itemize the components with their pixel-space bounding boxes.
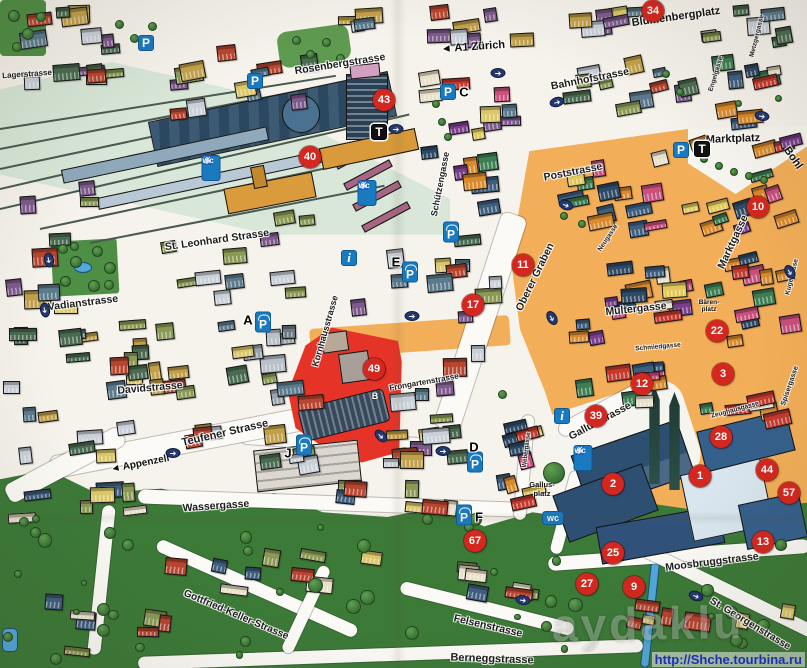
building — [285, 286, 306, 299]
one-way-icon: ➔ — [491, 68, 506, 78]
building — [732, 4, 749, 16]
poi-marker-12: 12 — [631, 373, 653, 395]
tree-icon — [730, 168, 738, 176]
building — [81, 27, 104, 45]
building — [635, 395, 655, 409]
poi-marker-10: 10 — [747, 196, 769, 218]
wc-icon: wc — [542, 511, 564, 525]
covered-parking-icon: P — [456, 505, 472, 526]
building — [276, 379, 305, 397]
wc-icon: wc — [575, 446, 587, 456]
building — [430, 413, 454, 424]
building — [5, 279, 23, 298]
building — [261, 372, 278, 386]
tree-icon — [438, 118, 446, 126]
poi-marker-9: 9 — [623, 576, 645, 598]
poi-marker-3: 3 — [712, 363, 734, 385]
one-way-icon: ➔ — [389, 124, 404, 134]
tree-icon — [360, 590, 375, 605]
tree-icon — [73, 609, 79, 615]
building — [80, 197, 99, 208]
parking-icon: P — [440, 84, 456, 100]
building — [45, 594, 64, 611]
building — [774, 26, 792, 45]
building — [116, 420, 136, 437]
poi-marker-13: 13 — [752, 531, 774, 553]
tree-icon — [346, 599, 361, 614]
building — [759, 269, 774, 287]
transit-stop-icon-t-marktplatz: T — [694, 141, 710, 157]
tree-icon — [14, 570, 22, 578]
building — [66, 352, 90, 363]
tree-icon — [104, 280, 114, 290]
tree-icon — [662, 70, 670, 78]
building — [607, 260, 634, 276]
building — [510, 32, 534, 47]
covered-parking-icon: P — [296, 435, 312, 456]
building — [701, 31, 721, 44]
building — [121, 483, 135, 503]
building — [56, 7, 70, 19]
tree-icon — [490, 568, 498, 576]
tree-icon — [735, 100, 742, 107]
building — [476, 152, 498, 172]
building — [470, 345, 484, 362]
building — [186, 97, 207, 118]
building — [299, 214, 316, 226]
building — [214, 289, 233, 306]
info-icon: i — [554, 408, 570, 424]
tree-icon — [70, 256, 82, 268]
poi-marker-34: 34 — [642, 0, 664, 22]
tree-icon — [514, 614, 521, 621]
tree-icon — [12, 42, 22, 52]
tree-icon — [745, 172, 753, 180]
tree-icon — [322, 38, 331, 47]
building — [119, 319, 147, 331]
accessible-wc-icon: ♿wc — [202, 155, 221, 181]
tree-icon — [317, 524, 324, 531]
watermark-ghost: aydaklu — [552, 594, 807, 652]
tree-icon — [498, 390, 507, 399]
building — [110, 356, 130, 375]
building — [344, 480, 369, 498]
tree-icon — [135, 643, 144, 652]
tree-icon — [760, 176, 768, 184]
building — [575, 378, 594, 398]
tree-icon — [715, 162, 723, 170]
building — [727, 70, 744, 90]
poi-marker-49: 49 — [363, 358, 385, 380]
building — [224, 273, 245, 290]
poi-marker-44: 44 — [756, 459, 778, 481]
tree-icon — [108, 610, 119, 621]
poi-marker-27: 27 — [576, 573, 598, 595]
building — [641, 182, 664, 203]
covered-parking-icon: P — [443, 222, 459, 243]
building — [731, 264, 750, 281]
place-label-gallusplatz: Gallus- platz — [529, 480, 554, 498]
poi-marker-17: 17 — [462, 294, 484, 316]
building — [422, 427, 451, 445]
building — [170, 108, 188, 122]
building — [502, 104, 518, 119]
poi-marker-1: 1 — [689, 465, 711, 487]
building — [480, 106, 501, 123]
poi-marker-22: 22 — [706, 320, 728, 342]
covered-parking-icon: P — [402, 262, 418, 283]
building — [58, 327, 83, 346]
garage-letter-E: E — [392, 255, 401, 270]
building — [269, 270, 295, 286]
tree-icon — [58, 244, 68, 254]
building — [415, 388, 429, 401]
building — [23, 407, 37, 423]
tree-icon — [775, 95, 782, 102]
tree-icon — [775, 539, 787, 551]
poi-marker-25: 25 — [602, 542, 624, 564]
building — [217, 320, 235, 332]
building — [449, 121, 471, 136]
building — [493, 86, 509, 102]
building — [779, 313, 803, 335]
tree-icon — [97, 624, 110, 637]
building — [158, 615, 172, 633]
building — [576, 319, 591, 331]
building — [420, 145, 439, 160]
tree-icon — [240, 636, 251, 647]
place-label-marktplatz: Marktplatz — [706, 132, 761, 146]
building — [245, 566, 262, 580]
tree-icon — [276, 588, 284, 596]
building — [400, 450, 424, 468]
building — [19, 196, 36, 215]
building — [87, 68, 107, 83]
building — [477, 198, 501, 216]
one-way-icon: ➔ — [405, 311, 420, 321]
poi-marker-11: 11 — [512, 254, 534, 276]
building — [53, 62, 81, 81]
parking-icon: P — [247, 73, 263, 89]
tree-icon — [560, 212, 568, 220]
building — [427, 28, 451, 43]
place-label-baerenplatz: Bären- platz — [699, 299, 720, 313]
one-way-icon: ➔ — [548, 95, 565, 109]
building — [226, 364, 250, 385]
tree-icon — [88, 280, 100, 292]
one-way-icon: ➔ — [436, 446, 451, 456]
building — [569, 13, 593, 29]
building — [726, 334, 744, 348]
poi-marker-67: 67 — [464, 530, 486, 552]
tree-icon — [22, 28, 34, 40]
covered-parking-icon: P — [255, 312, 271, 333]
building — [645, 265, 666, 279]
tree-icon — [308, 578, 323, 593]
tree-icon — [104, 527, 116, 539]
building — [222, 247, 247, 265]
poi-marker-43: 43 — [373, 89, 395, 111]
tree-icon — [432, 100, 440, 108]
tree-icon — [60, 276, 71, 287]
garage-letter-B: B — [372, 391, 379, 401]
garage-letter-D: D — [469, 440, 478, 455]
building — [386, 429, 409, 441]
building — [216, 44, 237, 62]
building — [350, 298, 366, 316]
building — [89, 487, 114, 504]
tree-icon — [70, 242, 79, 251]
tree-icon — [292, 36, 301, 45]
building — [137, 627, 159, 638]
building — [426, 272, 454, 293]
tree-icon — [306, 50, 315, 59]
street-label-lagerstrasse: Lagerstrasse — [2, 68, 52, 80]
building — [465, 568, 488, 583]
parking-icon: P — [138, 35, 154, 51]
wc-icon: wc — [359, 181, 371, 191]
building — [662, 281, 688, 299]
transit-stop-icon-t-bahnhof: T — [371, 124, 387, 140]
building — [155, 322, 175, 341]
accessible-wc-icon: ♿wc — [574, 445, 593, 471]
tree-icon — [552, 556, 562, 566]
garage-letter-C: C — [459, 85, 468, 100]
building — [615, 100, 642, 117]
tree-icon — [104, 262, 116, 274]
one-way-icon: ➔ — [166, 448, 181, 458]
street-label-stleonhard: St. Leonhard Strasse — [164, 227, 270, 254]
building — [164, 557, 187, 576]
city-map: aydaklu http://Shche.tourbina.ru Lagerst… — [0, 0, 807, 668]
tree-icon — [444, 133, 452, 141]
building — [418, 70, 441, 88]
building — [297, 394, 324, 411]
garage-letter-A: A — [243, 313, 252, 328]
building — [37, 409, 58, 422]
building — [290, 94, 307, 112]
accessible-wc-icon: ♿wc — [358, 180, 377, 206]
building — [262, 548, 282, 568]
building — [3, 381, 21, 394]
poi-marker-40: 40 — [299, 146, 321, 168]
building — [96, 448, 117, 463]
watermark-url-link[interactable]: http://Shche.tourbina.ru — [652, 652, 805, 667]
building — [389, 392, 417, 412]
building — [569, 330, 589, 344]
parking-icon: P — [673, 142, 689, 158]
covered-parking-icon: P — [467, 452, 483, 473]
building — [167, 365, 189, 380]
wc-icon: wc — [203, 156, 215, 166]
garage-letter-J: J — [284, 446, 291, 461]
building — [405, 479, 419, 498]
building — [78, 180, 95, 196]
building — [462, 172, 488, 192]
building — [259, 453, 282, 471]
poi-marker-28: 28 — [710, 426, 732, 448]
tree-icon — [115, 20, 124, 29]
tree-icon — [36, 12, 46, 22]
building — [9, 328, 37, 341]
tree-icon — [8, 10, 20, 22]
cathedral-tower — [668, 392, 681, 490]
tree-icon — [148, 22, 157, 31]
building — [483, 7, 498, 23]
street-label-engelgasse: Engelgasse — [707, 56, 724, 93]
building — [127, 364, 149, 382]
tree-icon — [676, 88, 684, 96]
building — [382, 457, 398, 467]
info-icon: i — [341, 250, 357, 266]
building — [605, 363, 632, 382]
building — [273, 209, 296, 227]
building — [282, 324, 296, 338]
garage-letter-F: F — [475, 510, 483, 525]
building — [194, 270, 222, 287]
building — [18, 446, 33, 464]
building — [588, 330, 605, 346]
poi-marker-2: 2 — [602, 473, 624, 495]
building — [489, 276, 503, 290]
poi-marker-57: 57 — [778, 482, 800, 504]
tree-icon — [50, 653, 62, 665]
tree-icon — [92, 246, 103, 257]
building — [353, 17, 376, 32]
building — [430, 4, 450, 21]
building — [563, 90, 592, 106]
tree-icon — [578, 220, 586, 228]
poi-marker-39: 39 — [585, 405, 607, 427]
